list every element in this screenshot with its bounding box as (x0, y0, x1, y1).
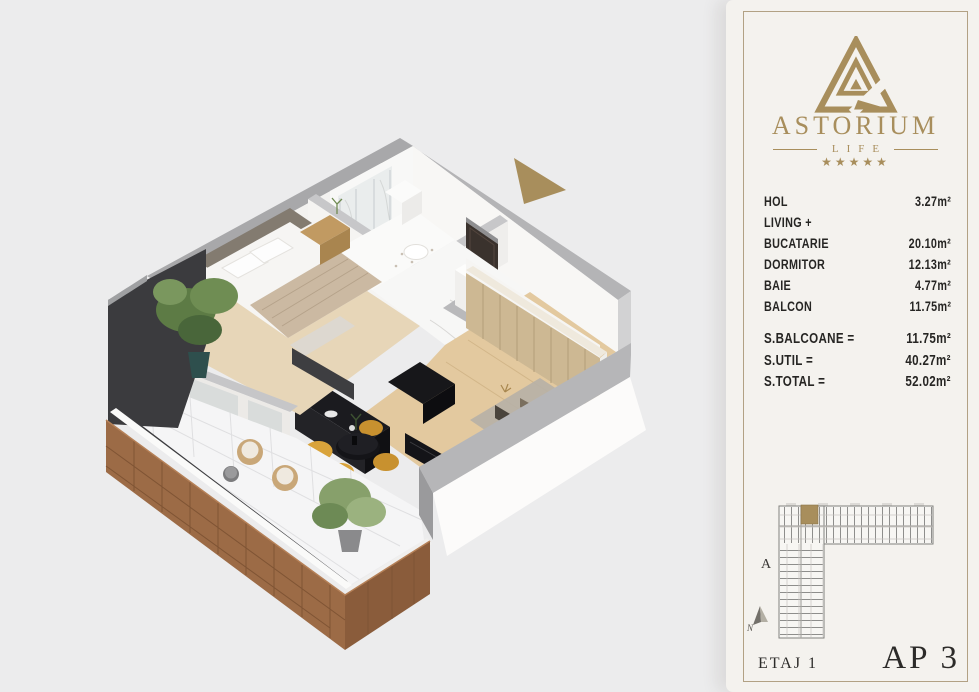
total-label: S.BALCOANE = (764, 329, 877, 351)
compass-label: N (746, 623, 754, 633)
astorium-logo-icon (808, 36, 904, 114)
room-area: 12.13m² (898, 254, 951, 275)
room-label: LIVING + BUCATARIE (764, 212, 884, 254)
north-arrow-icon: N (746, 606, 768, 633)
tagline-rule-right (894, 149, 938, 150)
floorplan-3d-render (0, 0, 740, 692)
total-area: 40.27m² (894, 351, 951, 373)
room-row: HOL 3.27m² (764, 191, 951, 212)
highlighted-apartment (801, 505, 818, 524)
total-label: S.UTIL = (764, 351, 825, 373)
room-area: 11.75m² (899, 296, 951, 317)
apartment-number: AP 3 (882, 640, 960, 677)
room-row: DORMITOR 12.13m² (764, 254, 951, 275)
total-area: 11.75m² (895, 329, 951, 351)
room-label: BALCON (764, 296, 824, 317)
room-row: BAIE 4.77m² (764, 275, 951, 296)
room-row: BALCON 11.75m² (764, 296, 951, 317)
room-area: 4.77m² (906, 275, 951, 296)
room-label: HOL (764, 191, 794, 212)
building-label: A (761, 557, 772, 572)
brand-name: ASTORIUM (744, 111, 967, 141)
room-label: DORMITOR (764, 254, 840, 275)
floor-label: ETAJ 1 (758, 655, 818, 673)
building-key-plan: A N (746, 498, 938, 644)
room-area: 20.10m² (898, 233, 951, 254)
room-area-list: HOL 3.27m² LIVING + BUCATARIE 20.10m² DO… (764, 191, 951, 317)
panel-footer: ETAJ 1 AP 3 (758, 640, 960, 677)
tagline-rule-left (773, 149, 817, 150)
total-area: 52.02m² (894, 372, 951, 394)
panel-frame: ASTORIUM LIFE ★★★★★ HOL 3.27m² LIVING + … (743, 11, 968, 682)
total-row: S.BALCOANE = 11.75m² (764, 329, 951, 351)
totals-list: S.BALCOANE = 11.75m² S.UTIL = 40.27m² S.… (764, 329, 951, 394)
brand-tagline: LIFE (824, 143, 887, 155)
room-label: BAIE (764, 275, 798, 296)
room-row: LIVING + BUCATARIE 20.10m² (764, 212, 951, 254)
spec-panel: ASTORIUM LIFE ★★★★★ HOL 3.27m² LIVING + … (726, 0, 979, 692)
brand-tagline-row: LIFE (744, 143, 967, 155)
room-area: 3.27m² (906, 191, 951, 212)
brochure-page: { "colors": { "bg": "#ececed", "card": "… (0, 0, 979, 692)
five-stars-icon: ★★★★★ (744, 155, 967, 169)
total-row: S.UTIL = 40.27m² (764, 351, 951, 373)
entrance-direction-arrow (514, 158, 566, 204)
total-row: S.TOTAL = 52.02m² (764, 372, 951, 394)
total-label: S.TOTAL = (764, 372, 841, 394)
